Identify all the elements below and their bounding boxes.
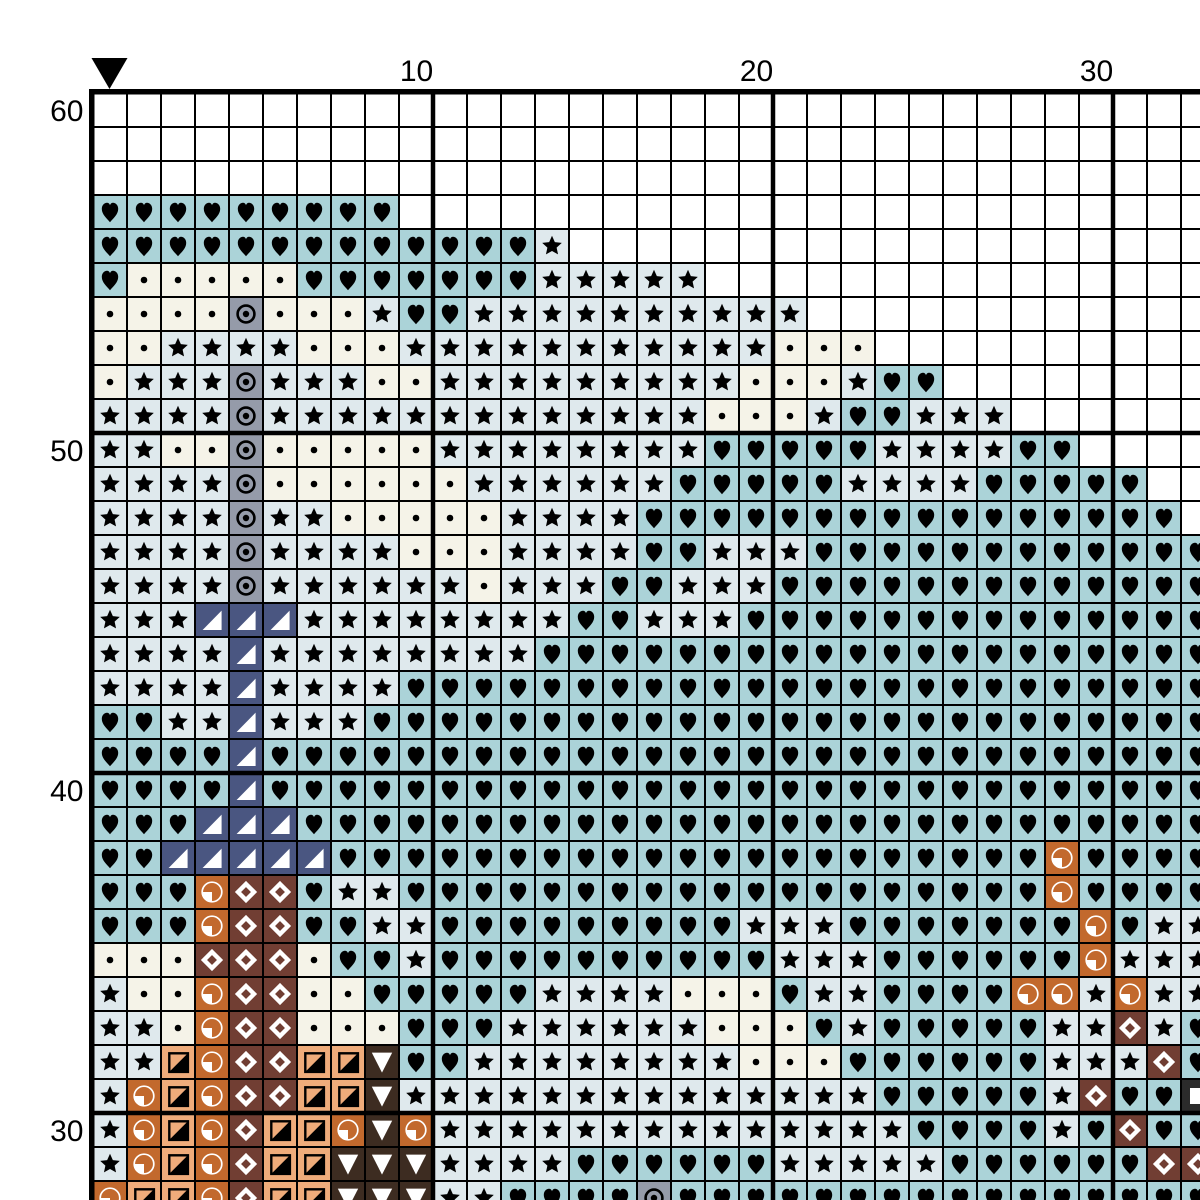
svg-text:10: 10: [400, 55, 433, 88]
svg-text:30: 30: [1080, 55, 1113, 88]
svg-text:50: 50: [50, 435, 83, 468]
svg-text:30: 30: [50, 1115, 83, 1148]
svg-text:20: 20: [740, 55, 773, 88]
svg-text:60: 60: [50, 95, 83, 128]
svg-text:40: 40: [50, 775, 83, 808]
